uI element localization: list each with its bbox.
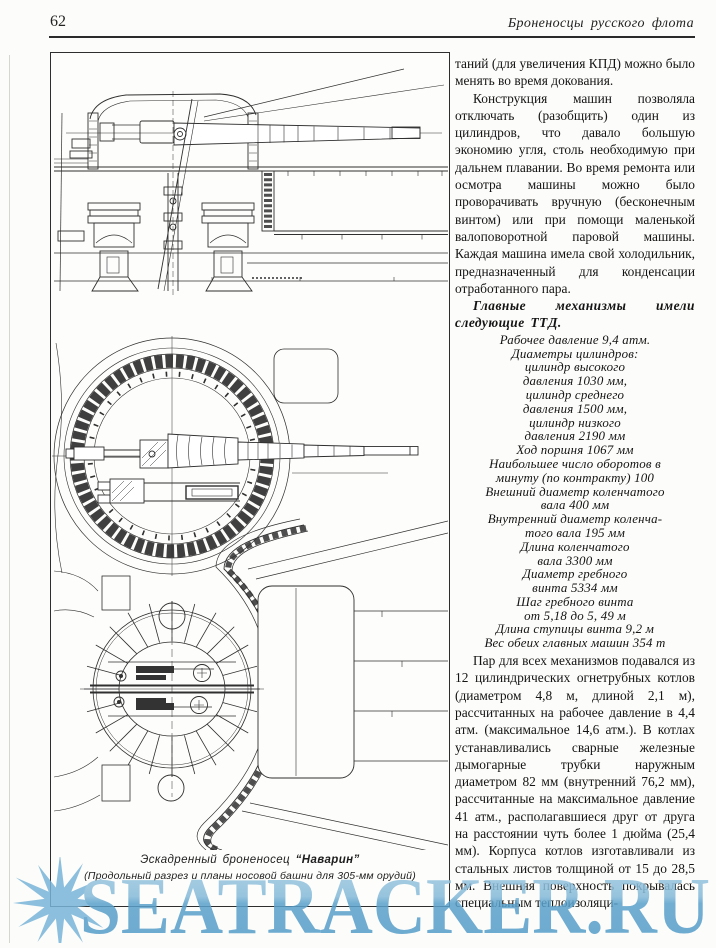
spec-list: Рабочее давление 9,4 атм. Диаметры цилин…: [455, 334, 695, 651]
spec-line: цилиндр высокого: [455, 361, 695, 375]
paragraph: Конструкция машин позволяла отключать (р…: [455, 90, 695, 298]
turret-longitudinal-section: [54, 69, 448, 295]
spec-line: Внешний диаметр коленчатого: [455, 486, 695, 500]
paragraph: таний (для увеличения КПД) можно было ме…: [455, 55, 695, 90]
spec-line: Внутренний диаметр коленча-: [455, 513, 695, 527]
spec-line: цилиндр среднего: [455, 389, 695, 403]
turret-figure-frame: Эскадренный броненосец “Наварин” (Продол…: [50, 52, 450, 907]
turret-technical-drawing: [52, 55, 448, 850]
spec-line: винта 5334 мм: [455, 582, 695, 596]
seatracker-watermark: SEATRACKER.RU: [0, 857, 716, 943]
spec-line: вала 400 мм: [455, 499, 695, 513]
header-rule: [49, 36, 695, 38]
spec-line: Диаметр гребного: [455, 568, 695, 582]
spec-line: Вес обеих главных машин 354 т: [455, 637, 695, 651]
spec-line: Длина ступицы винта 9,2 м: [455, 623, 695, 637]
spec-line: Ход поршня 1067 мм: [455, 444, 695, 458]
page-scan-edge: [9, 55, 10, 943]
lower-platform-plan: [54, 519, 448, 850]
spec-line: от 5,18 до 5, 49 м: [455, 610, 695, 624]
spec-line: минуту (по контракту) 100: [455, 472, 695, 486]
running-header: Броненосцы русского флота: [508, 16, 694, 32]
spec-line: вала 3300 мм: [455, 555, 695, 569]
spec-line: давления 1030 мм,: [455, 375, 695, 389]
spec-line: того вала 195 мм: [455, 527, 695, 541]
section-heading: Главные механизмы имели следующие ТТД.: [455, 297, 695, 332]
text-column: таний (для увеличения КПД) можно было ме…: [455, 55, 695, 912]
spec-line: Наибольшее число оборотов в: [455, 458, 695, 472]
spec-line: Длина коленчатого: [455, 541, 695, 555]
spec-line: цилиндр низкого: [455, 417, 695, 431]
spec-line: Шаг гребного винта: [455, 596, 695, 610]
spec-line: давления 2190 мм: [455, 430, 695, 444]
spec-line: Рабочее давление 9,4 атм.: [455, 334, 695, 348]
page-number: 62: [50, 13, 66, 31]
spec-line: Диаметры цилиндров:: [455, 348, 695, 362]
spec-line: давления 1500 мм,: [455, 403, 695, 417]
watermark-text: SEATRACKER.RU: [80, 863, 710, 943]
